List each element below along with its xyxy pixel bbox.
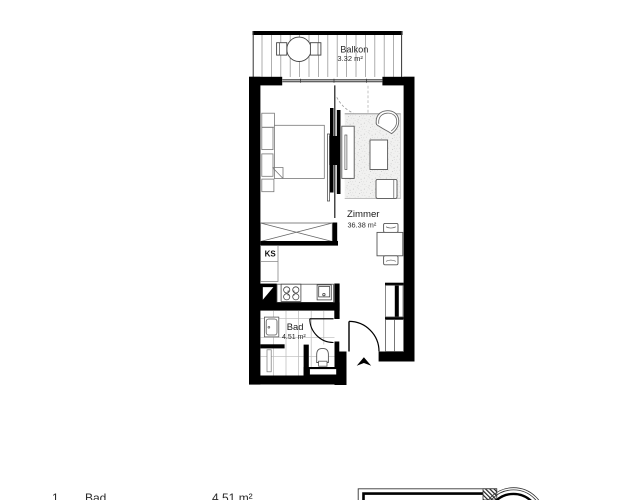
svg-text:1: 1 — [52, 491, 59, 500]
svg-text:Bad: Bad — [85, 491, 106, 500]
svg-text:Balkon: Balkon — [340, 44, 368, 54]
svg-text:4.51 m²: 4.51 m² — [282, 334, 306, 341]
svg-text:4.51 m²: 4.51 m² — [212, 491, 253, 500]
svg-text:Bad: Bad — [287, 321, 304, 332]
svg-text:36.38 m²: 36.38 m² — [348, 220, 377, 229]
svg-text:Zimmer: Zimmer — [347, 209, 380, 220]
svg-text:KS: KS — [265, 249, 277, 258]
svg-text:3.32 m²: 3.32 m² — [337, 54, 363, 63]
